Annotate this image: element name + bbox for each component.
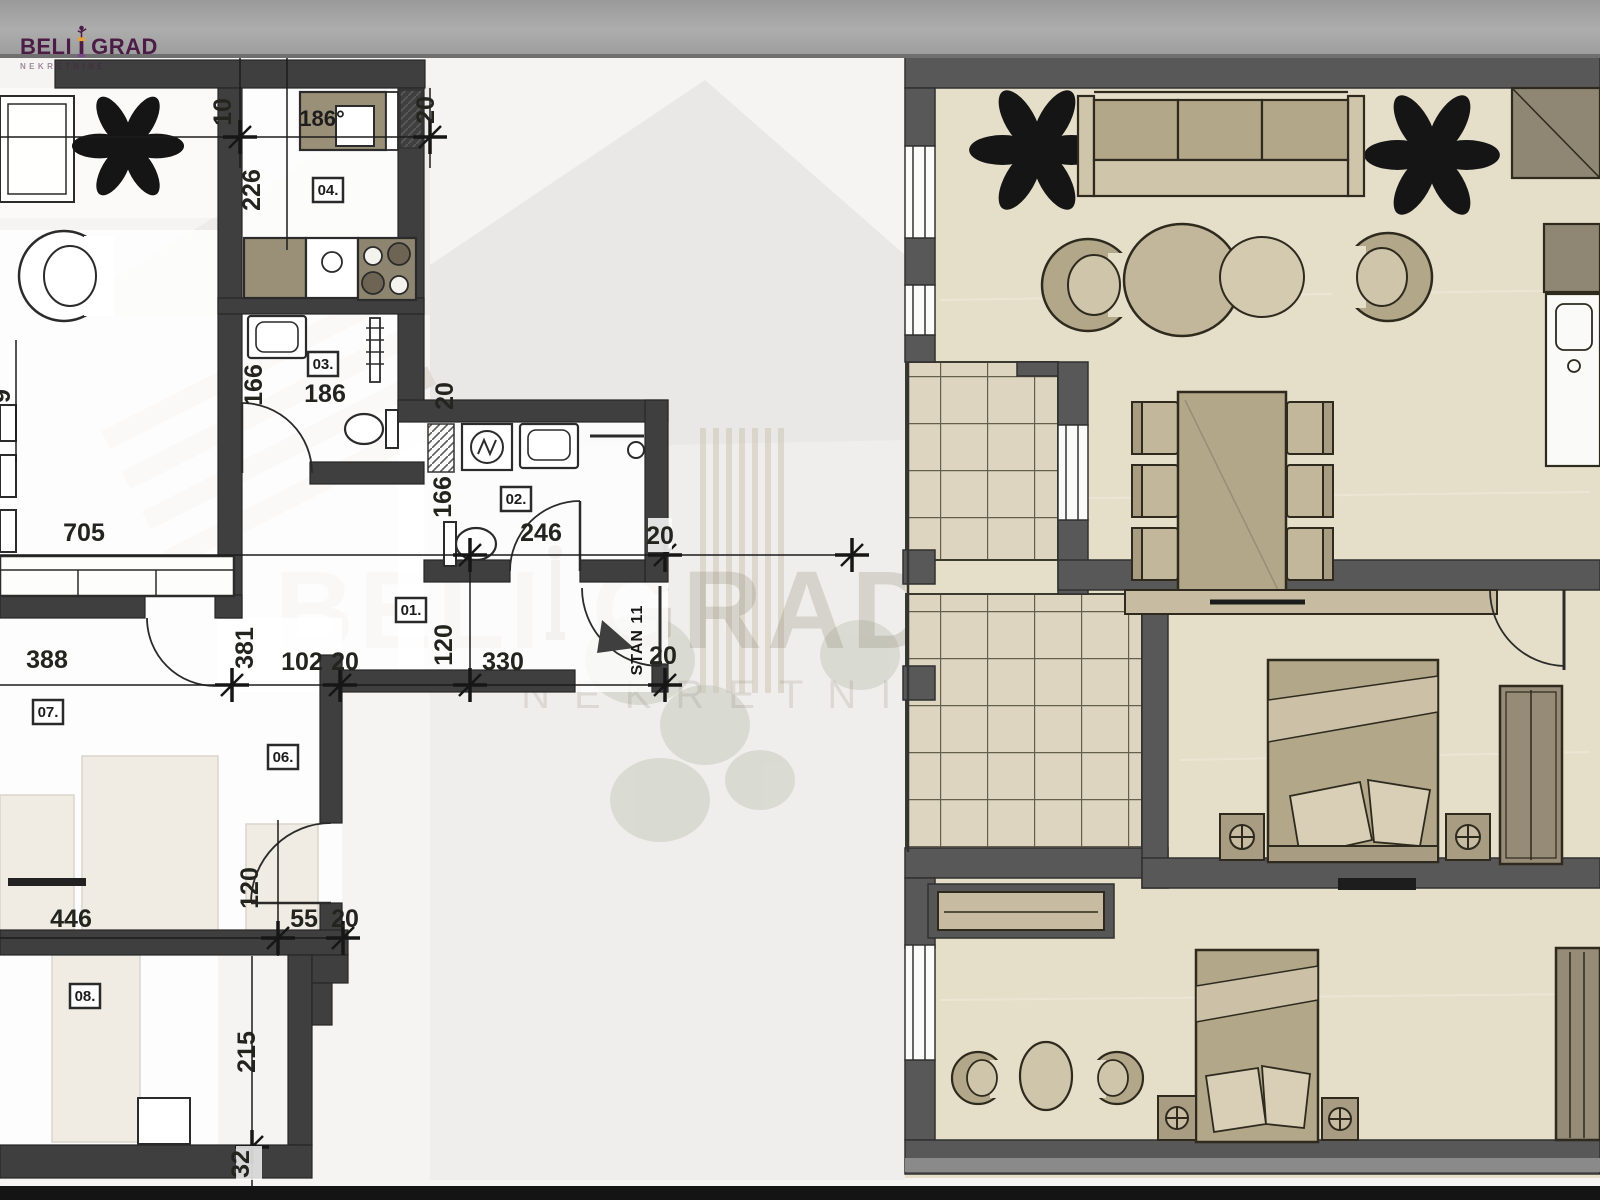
dining-chair [1287,465,1333,517]
room-label-01: 01. [396,598,426,622]
dim-label: 20 [646,522,674,550]
dim-label: 55 [290,905,318,933]
vent-shaft [428,424,454,472]
statue-icon [74,24,89,60]
brand-tagline: NEKRETNINE [20,62,158,71]
dining-chair [1132,528,1178,580]
brand-word2: GRAD [91,34,158,60]
cabinet-symbol [138,1098,190,1144]
nightstand-symbol [1158,1096,1196,1140]
dim-label: 120 [236,867,264,909]
screenshot-root: BELI GRAD NEKRETNINE [0,0,1600,1200]
dim-label: 388 [26,646,68,674]
dim-label: 20 [331,905,359,933]
cabinet-niche [928,884,1114,938]
brand-logo: BELI GRAD NEKRETNINE [20,24,158,71]
svg-text:06.: 06. [273,749,294,766]
room-label-07: 07. [33,700,63,724]
dim-label: 32 [227,1150,255,1178]
dining-set [1132,392,1333,598]
sideboard-symbol [1125,590,1497,614]
wardrobe-symbol [1556,948,1600,1140]
dim-label: 446 [50,905,92,933]
dining-chair [1287,402,1333,454]
svg-text:08.: 08. [75,988,96,1005]
double-bed-symbol [1196,950,1318,1142]
svg-text:02.: 02. [506,491,527,508]
sliding-door [1338,878,1416,890]
armchair-symbol [19,231,114,321]
washing-machine-symbol [462,424,512,470]
dining-chair [1287,528,1333,580]
sofa-symbol [0,556,234,596]
room-label-08: 08. [70,984,100,1008]
balcony-bench [0,96,74,202]
dim-label: 9 [0,389,16,403]
dim-label: 186 [304,380,346,408]
terrace-door [1058,425,1088,520]
svg-text:03.: 03. [313,356,334,373]
room-label-04: 04. [313,178,343,202]
room-label-02: 02. [501,487,531,511]
window-frames [0,405,16,552]
dim-label: 120 [430,624,458,666]
dining-chair [1132,465,1178,517]
bottom-bar [0,1186,1600,1200]
toilet-symbol [345,410,398,448]
dim-label: 381 [231,627,259,669]
svg-text:04.: 04. [318,182,339,199]
coffee-table-symbol [1220,237,1304,317]
svg-text:01.: 01. [401,602,422,619]
dim-label: 705 [63,519,105,547]
dim-label: 20 [649,642,677,670]
svg-text:07.: 07. [38,704,59,721]
nightstand-symbol [1220,814,1264,860]
side-table-symbol [1020,1042,1072,1110]
dim-label: 246 [520,519,562,547]
dim-label: 215 [233,1031,261,1073]
dim-label: 226 [238,169,266,211]
top-bar [0,0,1600,58]
wall-shadow [905,1158,1600,1172]
unit-label: STAN 11 [629,605,646,676]
dim-label: 10 [209,98,237,126]
dim-label: 330 [482,648,524,676]
double-bed-symbol [1268,660,1438,862]
stove-symbol [358,238,416,300]
sofa-symbol [1078,92,1364,196]
dim-label: 166 [429,476,457,518]
room-label-03: 03. [308,352,338,376]
dim-label: 20 [331,648,359,676]
floor-plans-canvas: BELI GRAD NEKRETNINE [0,0,1600,1200]
nightstand-symbol [1322,1098,1358,1140]
right-floor-plan [903,56,1600,1178]
dining-chair [1132,402,1178,454]
dim-label: 166 [240,364,268,406]
room-label-06: 06. [268,745,298,769]
kitchen-note-label: 186° [299,106,345,131]
wardrobe-symbol [1500,686,1562,864]
dim-label: 102 [281,648,323,676]
dim-label: 20 [412,96,440,124]
tv-symbol [8,878,86,886]
brand-word1: BELI [20,34,72,60]
dim-label: 20 [431,382,459,410]
nightstand-symbol [1446,814,1490,860]
armchair-symbol [1332,233,1432,321]
